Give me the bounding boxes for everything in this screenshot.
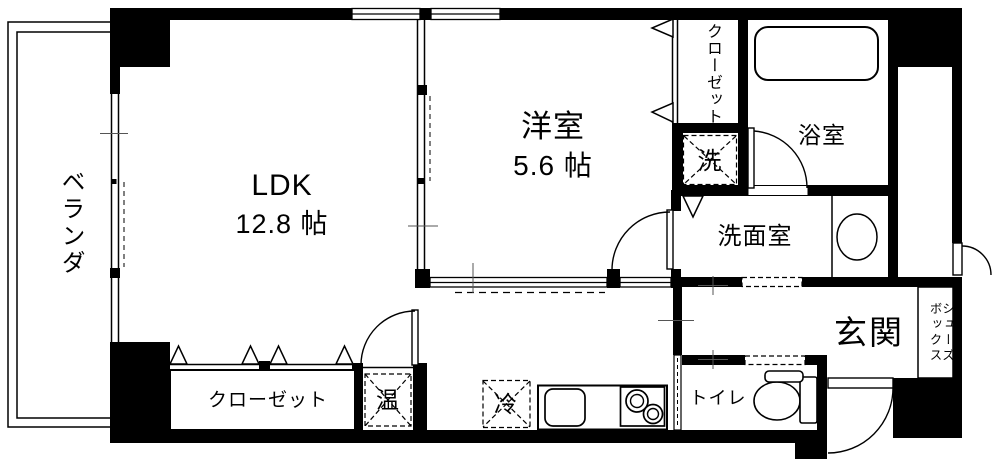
meter-box-door-arc [962, 246, 991, 275]
western-room-label: 洋室 [493, 108, 613, 145]
wall [802, 277, 962, 287]
shoe-box-label: シューズボックス [917, 295, 953, 371]
wash-basin [837, 214, 877, 260]
burner-inner [631, 395, 644, 408]
toilet-tank [800, 377, 817, 423]
ldk-door-leaf [412, 310, 418, 365]
folding-door-triangle [336, 346, 353, 364]
ldk-partition-sliding [418, 20, 425, 269]
wall [170, 8, 352, 20]
western-room-size-label: 5.6 帖 [493, 149, 613, 183]
thin-lines [8, 18, 678, 427]
wall [817, 355, 827, 430]
wall [110, 430, 827, 443]
wall [795, 430, 827, 459]
wall [110, 8, 170, 67]
western-room-door-arc [612, 212, 670, 270]
window-joint [112, 179, 117, 184]
wall [893, 378, 962, 438]
wall [607, 269, 620, 288]
folding-door-triangle [242, 346, 259, 364]
entrance-door-leaf [828, 378, 893, 388]
wall [420, 8, 431, 20]
window-joint [110, 268, 120, 278]
toilet-door [674, 355, 681, 430]
wall [888, 18, 898, 277]
wall [500, 8, 890, 20]
wall [110, 342, 170, 438]
entrance-label: 玄関 [819, 313, 919, 353]
bathroom-door-leaf [748, 128, 754, 188]
wall [413, 363, 427, 430]
wall [415, 269, 430, 288]
wall [110, 67, 120, 94]
toilet-bowl [754, 382, 800, 420]
partition-joint [417, 85, 427, 95]
toilet-lid [765, 371, 803, 382]
veranda-label: ベランダ [50, 168, 82, 278]
lower-closet-label: クローゼット [185, 390, 351, 413]
wall [682, 185, 740, 196]
wall [805, 355, 817, 365]
refrigerator-label: 冷 [488, 391, 524, 419]
kitchen-sink [545, 389, 585, 426]
wall [808, 185, 888, 196]
western-room-door-leaf [667, 210, 673, 269]
folding-door-triangle [170, 346, 187, 364]
entrance-door-arc [828, 388, 893, 453]
folding-door-triangle [652, 103, 673, 122]
folding-door-triangle [683, 196, 703, 217]
toilet-label: トイレ [683, 388, 753, 410]
floor-plan: ベランダ LDK 12.8 帖 洋室 5.6 帖 クローゼット 浴室 洗 洗面室… [0, 0, 1000, 460]
bathroom-doorway [748, 186, 808, 196]
folding-door-triangle [270, 346, 287, 364]
meter-box-door-leaf [953, 243, 962, 275]
toilet-top-sliding [745, 356, 805, 365]
wall [738, 18, 748, 196]
water-heater-label: 温 [370, 387, 406, 415]
upper-closet-label: クローゼット [694, 23, 720, 125]
folding-door-triangle [652, 19, 673, 37]
ldk-window [112, 94, 119, 342]
bathtub [755, 27, 878, 80]
bathroom-label: 浴室 [772, 122, 872, 150]
wall [672, 123, 683, 196]
washroom-sliding-door [742, 278, 802, 287]
ldk-label: LDK [222, 168, 342, 204]
laundry-label: 洗 [692, 148, 728, 177]
washroom-label: 洗面室 [695, 223, 815, 252]
ldk-size-label: 12.8 帖 [222, 208, 342, 240]
sliding-partition-band [430, 278, 671, 293]
partition-joint [418, 178, 424, 184]
ldk-door-arc [361, 311, 415, 365]
wall [890, 8, 962, 67]
wall [952, 67, 962, 243]
burner-inner [648, 409, 659, 420]
